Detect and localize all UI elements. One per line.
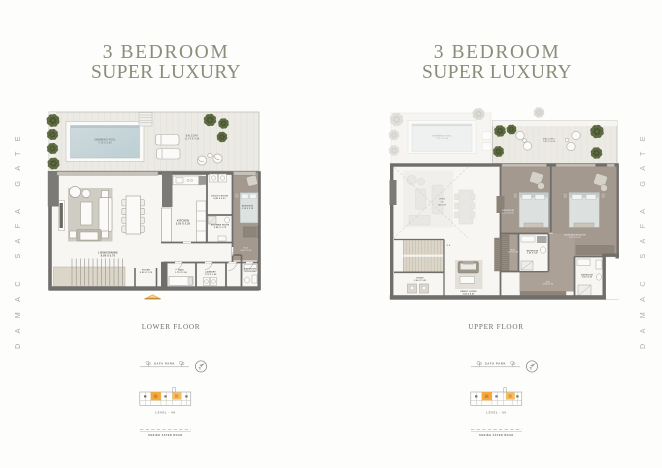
svg-text:1.70 X 2.20: 1.70 X 2.20 <box>508 252 519 254</box>
svg-text:BEDROOM: BEDROOM <box>242 206 253 208</box>
svg-text:SWIMMING POOL: SWIMMING POOL <box>94 140 116 142</box>
svg-text:1.75 X 1.90: 1.75 X 1.90 <box>175 272 188 274</box>
svg-text:TO: TO <box>441 202 444 204</box>
svg-text:DAMAC SAFA GATE: DAMAC SAFA GATE <box>638 126 647 349</box>
svg-text:SWIMMING POOL: SWIMMING POOL <box>432 136 452 138</box>
svg-text:7.15 X 3.00: 7.15 X 3.00 <box>436 138 449 140</box>
svg-text:W.IC: W.IC <box>546 282 551 284</box>
svg-text:W.IC: W.IC <box>244 248 249 250</box>
svg-text:3.60 X 1.95: 3.60 X 1.95 <box>414 280 427 282</box>
svg-text:FOYER: FOYER <box>142 270 150 272</box>
svg-text:BEDROOM: BEDROOM <box>502 210 513 212</box>
svg-text:3.05 X 5.35: 3.05 X 5.35 <box>176 222 191 225</box>
svg-text:7.15 X 3.00: 7.15 X 3.00 <box>98 142 112 144</box>
svg-text:UTILITY ROOM: UTILITY ROOM <box>211 196 228 198</box>
svg-text:3.16 X 3.78: 3.16 X 3.78 <box>242 208 254 210</box>
svg-text:1.75 X 3.05: 1.75 X 3.05 <box>244 271 255 273</box>
svg-text:OPEN: OPEN <box>439 199 445 201</box>
svg-text:SHOWER ROOM: SHOWER ROOM <box>211 225 229 227</box>
svg-text:1.80 X 2.20: 1.80 X 2.20 <box>582 277 593 279</box>
svg-text:SAFA PARK: SAFA PARK <box>485 362 506 366</box>
svg-text:W.IC: W.IC <box>511 250 516 252</box>
svg-text:2.86 X 1.20: 2.86 X 1.20 <box>543 284 554 286</box>
svg-text:1.96 X 2.20: 1.96 X 2.20 <box>527 253 538 255</box>
svg-text:LEVEL - 49: LEVEL - 49 <box>155 411 175 415</box>
svg-text:BELOW: BELOW <box>438 205 446 207</box>
svg-text:STUDY: STUDY <box>416 278 424 280</box>
svg-text:1.75 X 1.90: 1.75 X 1.90 <box>205 274 218 276</box>
svg-text:D.N: D.N <box>447 245 451 247</box>
svg-text:2.20 X 1.70: 2.20 X 1.70 <box>140 272 153 274</box>
svg-text:8.80 X 5.75: 8.80 X 5.75 <box>101 254 116 257</box>
svg-text:SHEIKH ZAYED ROAD: SHEIKH ZAYED ROAD <box>148 434 182 437</box>
svg-text:DAMAC SAFA GATE: DAMAC SAFA GATE <box>13 126 22 349</box>
svg-text:LEVEL - 50: LEVEL - 50 <box>486 411 506 415</box>
svg-text:SHEIKH ZAYED ROAD: SHEIKH ZAYED ROAD <box>479 434 513 437</box>
svg-text:SAFA PARK: SAFA PARK <box>154 362 175 366</box>
